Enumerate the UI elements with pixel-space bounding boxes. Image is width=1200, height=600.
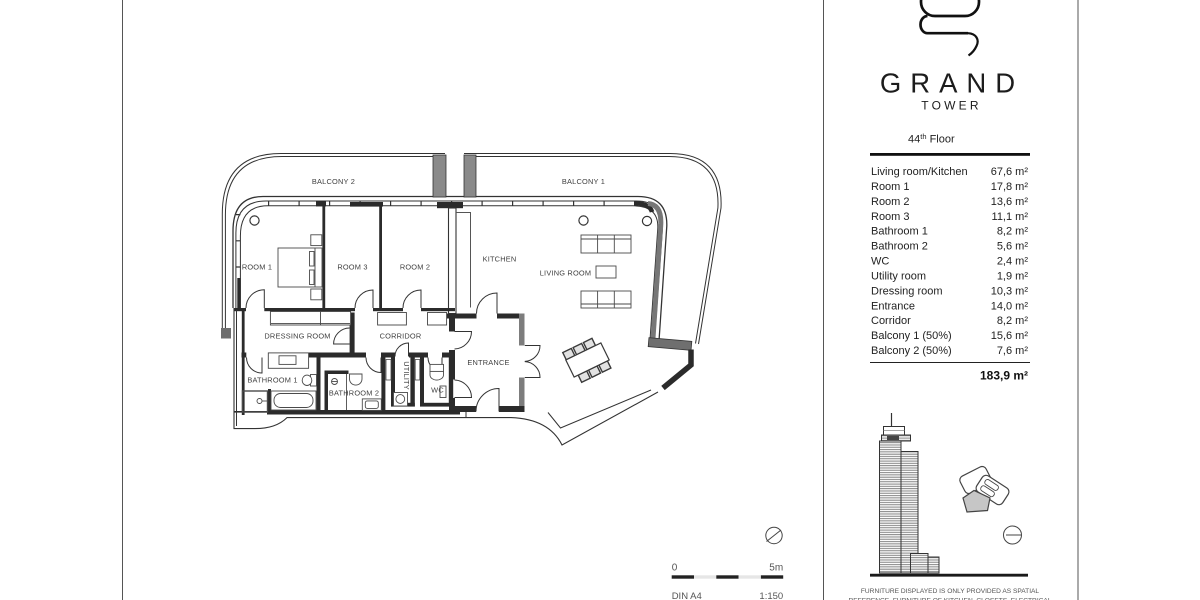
svg-text:BATHROOM 1: BATHROOM 1	[247, 376, 297, 385]
svg-text:5m: 5m	[769, 563, 783, 574]
svg-text:8,2 m²: 8,2 m²	[997, 226, 1029, 238]
svg-text:BALCONY 2: BALCONY 2	[312, 177, 355, 186]
svg-text:10,3 m²: 10,3 m²	[991, 285, 1029, 297]
svg-text:KITCHEN: KITCHEN	[483, 255, 517, 264]
svg-text:DRESSING ROOM: DRESSING ROOM	[264, 332, 330, 341]
svg-text:1,9 m²: 1,9 m²	[997, 271, 1029, 283]
svg-text:Balcony 1 (50%): Balcony 1 (50%)	[871, 330, 952, 342]
svg-text:17,8 m²: 17,8 m²	[991, 181, 1029, 193]
svg-text:Entrance: Entrance	[871, 300, 915, 312]
svg-text:LIVING ROOM: LIVING ROOM	[540, 269, 591, 278]
svg-text:Room 2: Room 2	[871, 196, 910, 208]
svg-text:ROOM 2: ROOM 2	[400, 263, 430, 272]
svg-text:0: 0	[672, 563, 678, 574]
svg-text:TOWER: TOWER	[921, 99, 981, 113]
svg-text:WC: WC	[871, 256, 889, 268]
svg-text:BALCONY 1: BALCONY 1	[562, 177, 605, 186]
svg-text:Bathroom 1: Bathroom 1	[871, 226, 928, 238]
svg-text:Corridor: Corridor	[871, 315, 911, 327]
svg-text:ROOM 1: ROOM 1	[242, 263, 272, 272]
svg-text:7,6 m²: 7,6 m²	[997, 345, 1029, 357]
svg-text:Dressing room: Dressing room	[871, 285, 943, 297]
svg-text:CORRIDOR: CORRIDOR	[380, 332, 422, 341]
svg-text:Bathroom 2: Bathroom 2	[871, 241, 928, 253]
svg-text:15,6 m²: 15,6 m²	[991, 330, 1029, 342]
svg-text:2,4 m²: 2,4 m²	[997, 256, 1029, 268]
svg-text:44th Floor: 44th Floor	[908, 132, 955, 146]
svg-text:Room 3: Room 3	[871, 211, 910, 223]
svg-text:11,1 m²: 11,1 m²	[992, 211, 1029, 223]
svg-text:ROOM 3: ROOM 3	[337, 263, 367, 272]
svg-text:1:150: 1:150	[759, 591, 783, 600]
svg-text:14,0 m²: 14,0 m²	[991, 300, 1029, 312]
svg-text:13,6 m²: 13,6 m²	[991, 196, 1029, 208]
svg-text:5,6 m²: 5,6 m²	[997, 241, 1029, 253]
svg-text:Room 1: Room 1	[871, 181, 910, 193]
svg-text:Utility room: Utility room	[871, 271, 926, 283]
svg-text:WC: WC	[431, 386, 444, 395]
svg-text:FURNITURE DISPLAYED IS ONLY PR: FURNITURE DISPLAYED IS ONLY PROVIDED AS …	[861, 588, 1040, 595]
svg-text:Balcony 2 (50%): Balcony 2 (50%)	[871, 345, 952, 357]
svg-text:ENTRANCE: ENTRANCE	[467, 358, 509, 367]
svg-text:UTILITY: UTILITY	[402, 361, 411, 390]
svg-text:DIN A4: DIN A4	[672, 591, 702, 600]
svg-text:183,9 m²: 183,9 m²	[980, 369, 1028, 383]
svg-text:Living room/Kitchen: Living room/Kitchen	[871, 166, 968, 178]
svg-text:GRAND: GRAND	[880, 68, 1024, 99]
svg-text:BATHROOM 2: BATHROOM 2	[329, 389, 379, 398]
svg-text:67,6 m²: 67,6 m²	[991, 166, 1029, 178]
svg-text:8,2 m²: 8,2 m²	[997, 315, 1029, 327]
